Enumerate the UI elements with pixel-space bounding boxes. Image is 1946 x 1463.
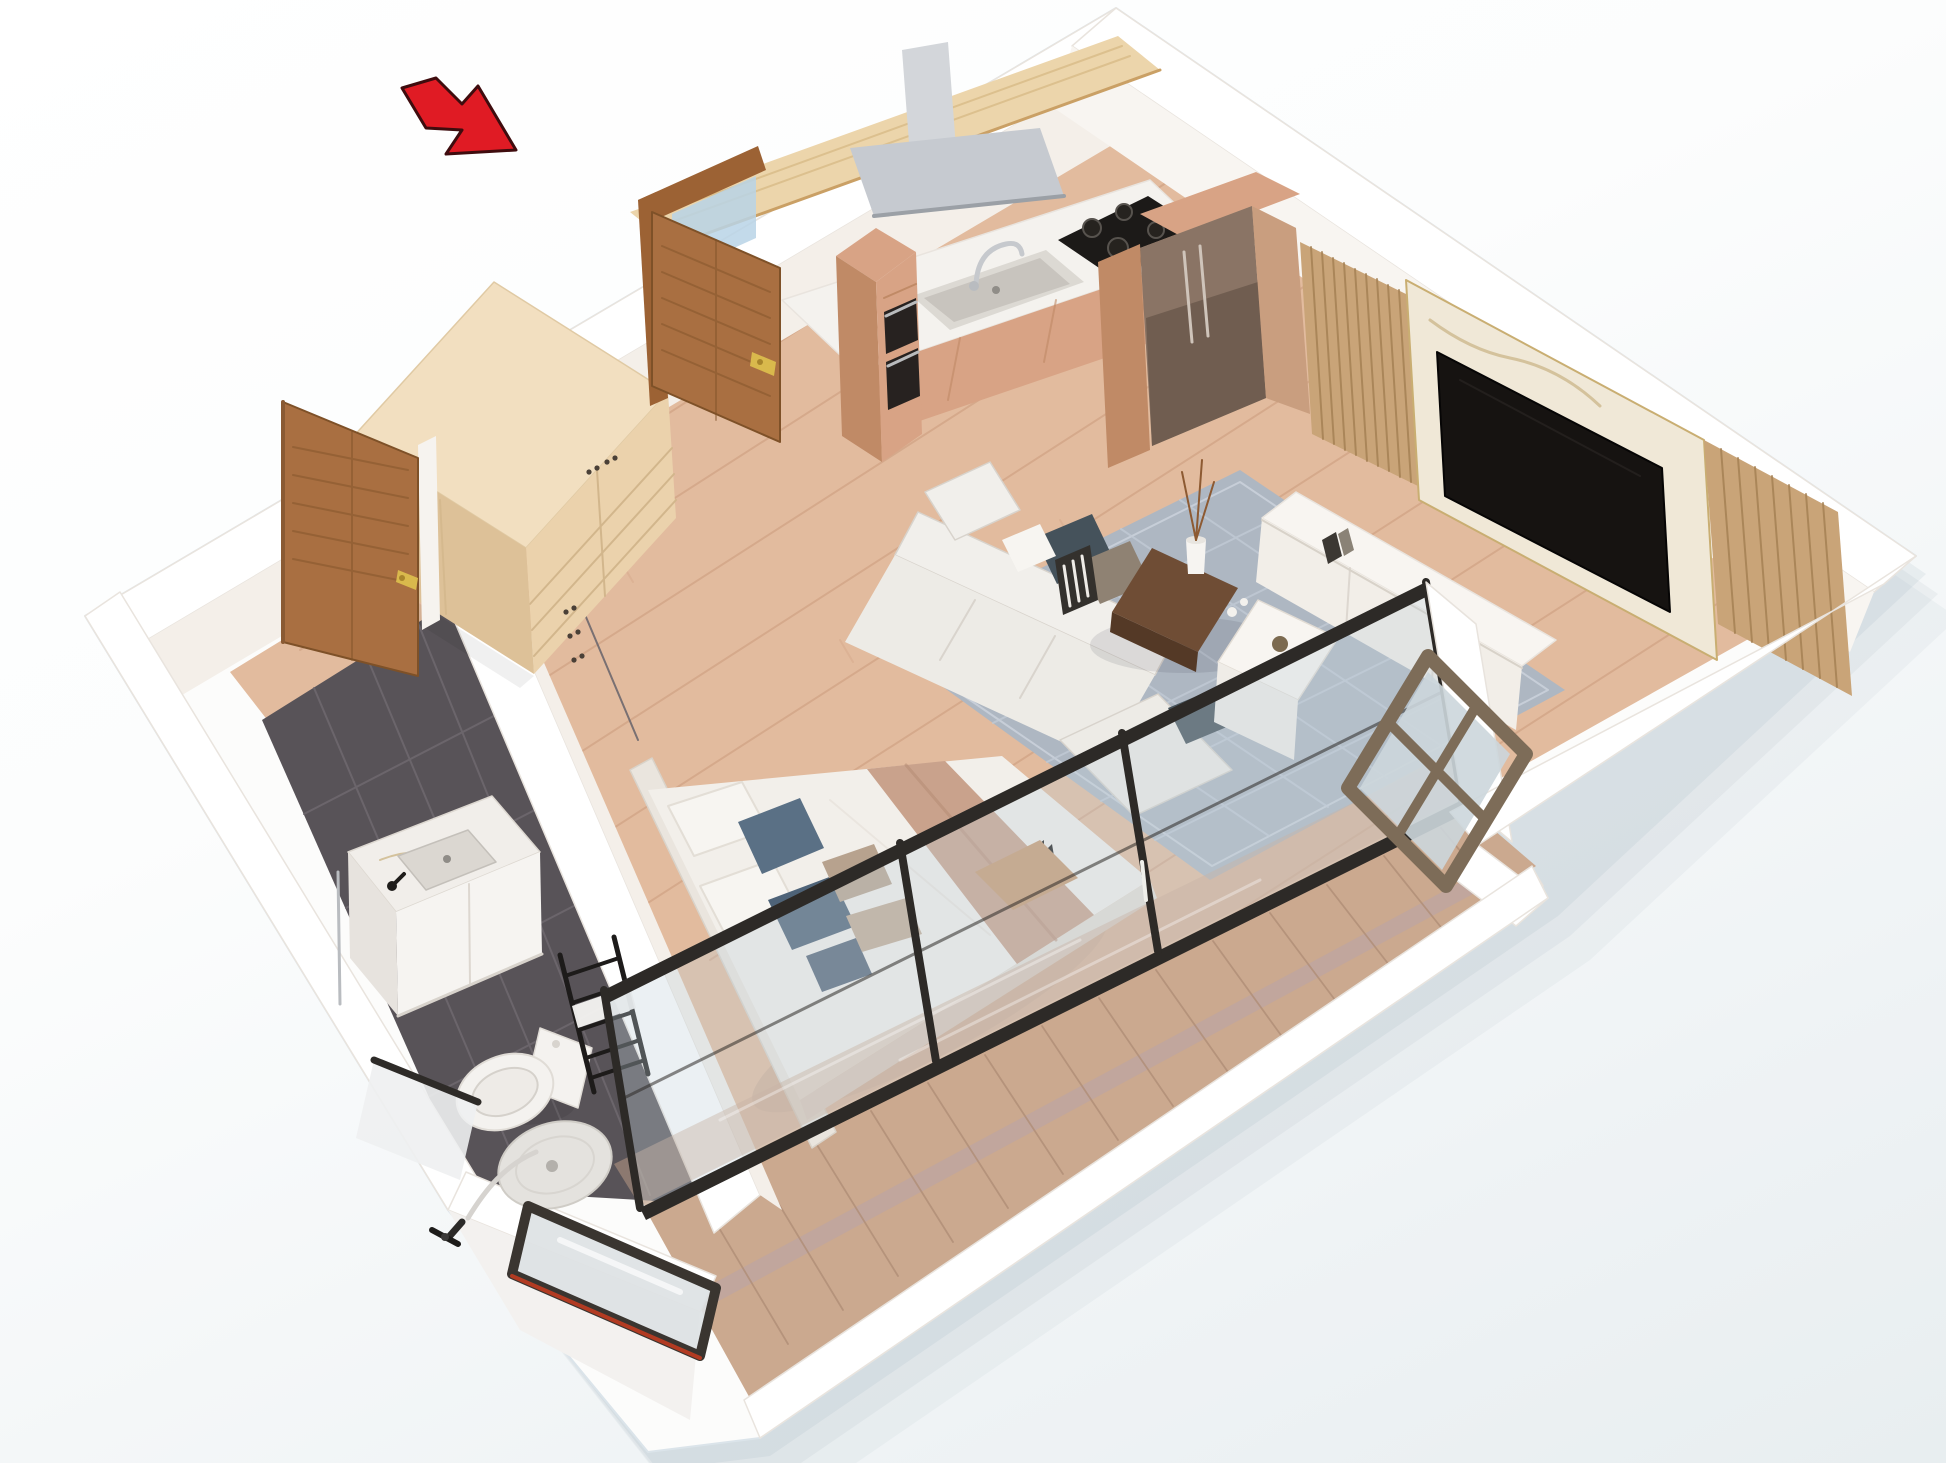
hand-shower [448,1222,462,1238]
render-canvas [0,0,1946,1463]
basin-drain [443,855,451,863]
plant [1272,636,1288,652]
oven-tower [836,228,922,462]
sink-drain [992,286,1000,294]
faucet-base [969,281,979,291]
shower-drain [546,1160,558,1172]
entrance-arrow [402,78,516,154]
floor-plan-render [0,0,1946,1463]
